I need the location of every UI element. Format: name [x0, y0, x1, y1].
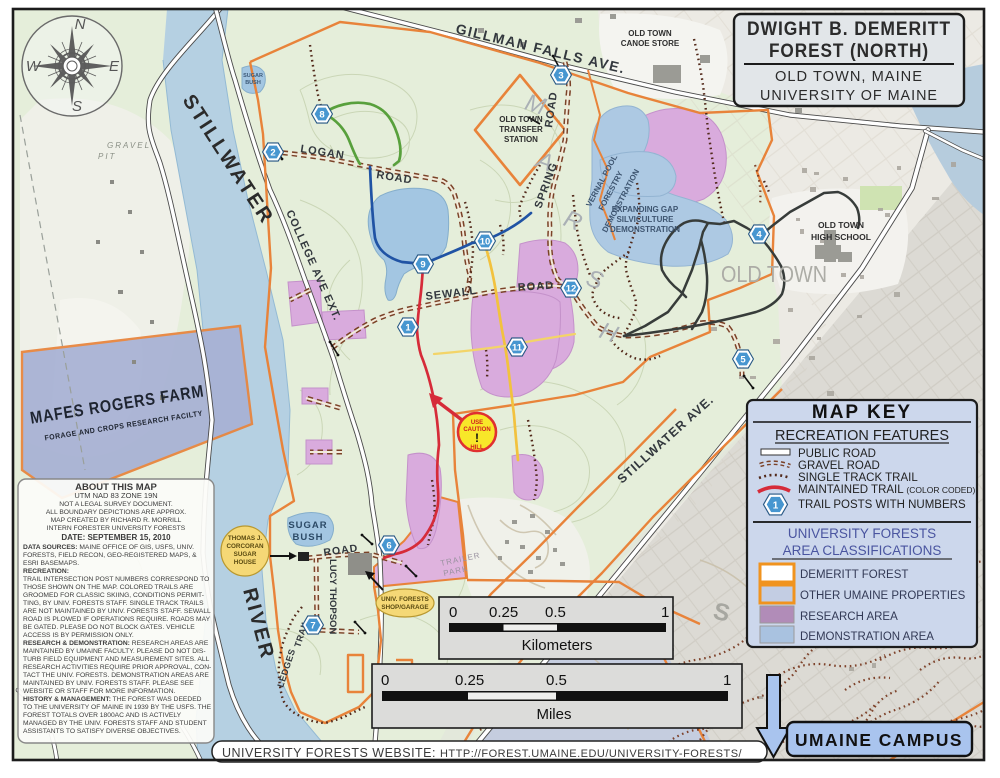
svg-text:EXPANDING GAP: EXPANDING GAP [612, 205, 679, 214]
svg-text:UMAINE CAMPUS: UMAINE CAMPUS [795, 730, 963, 750]
svg-text:SUGAR: SUGAR [234, 551, 257, 558]
svg-text:AREA CLASSIFICATIONS: AREA CLASSIFICATIONS [783, 543, 942, 558]
svg-text:MAINTAINED BY UMAINE FACULTY.: MAINTAINED BY UMAINE FACULTY. PLEASE DO … [23, 648, 206, 655]
svg-text:RESEARCH AREA: RESEARCH AREA [800, 611, 898, 623]
svg-text:3: 3 [558, 70, 563, 81]
svg-text:8: 8 [319, 109, 324, 120]
svg-text:WEBSITE OR STAFF FOR MORE INFO: WEBSITE OR STAFF FOR MORE INFORMATION. [23, 688, 176, 695]
svg-text:MAINTAINED TRAIL (COLOR CODED): MAINTAINED TRAIL (COLOR CODED) [798, 484, 976, 496]
svg-text:DEMONSTRATION AREA: DEMONSTRATION AREA [800, 631, 934, 643]
svg-text:CANOE STORE: CANOE STORE [621, 39, 680, 48]
svg-text:0.5: 0.5 [546, 672, 567, 689]
svg-text:FORESTS, FIELD RECON, GEO-REGI: FORESTS, FIELD RECON, GEO-REGISTERED MAP… [23, 552, 197, 559]
svg-text:USE: USE [471, 420, 483, 426]
svg-text:5: 5 [740, 354, 746, 365]
svg-text:DATA SOURCES: MAINE OFFICE OF: DATA SOURCES: MAINE OFFICE OF GIS, USFS,… [23, 544, 194, 551]
svg-text:S: S [72, 98, 82, 115]
svg-text:OLD TOWN: OLD TOWN [628, 29, 672, 38]
svg-text:ARE NOT MAINTAINED BY UNIV. FO: ARE NOT MAINTAINED BY UNIV. FORESTS STAF… [23, 608, 211, 615]
svg-text:10: 10 [480, 236, 491, 247]
svg-text:0.5: 0.5 [545, 604, 566, 621]
svg-text:DEMERITT FOREST: DEMERITT FOREST [800, 569, 908, 581]
svg-text:9: 9 [420, 259, 425, 270]
svg-text:HIGH SCHOOL: HIGH SCHOOL [811, 232, 871, 242]
svg-text:MANAGED BY THE UNIV. FORESTS S: MANAGED BY THE UNIV. FORESTS STAFF AND S… [23, 720, 207, 727]
svg-text:BE GATED. PLEASE DO NOT BLOCK: BE GATED. PLEASE DO NOT BLOCK GATES. VEH… [23, 624, 195, 631]
svg-text:W: W [26, 58, 42, 75]
svg-text:CORCORAN: CORCORAN [226, 543, 264, 550]
svg-text:STATION: STATION [504, 135, 538, 144]
svg-text:OLD TOWN: OLD TOWN [818, 220, 864, 230]
svg-text:SILVICULTURE: SILVICULTURE [616, 215, 674, 224]
svg-text:4: 4 [756, 229, 762, 240]
svg-text:TING, BY UNIV. FORESTS STAFF.: TING, BY UNIV. FORESTS STAFF. SINGLE TRA… [23, 600, 204, 607]
svg-text:0.25: 0.25 [489, 604, 518, 621]
svg-text:TRAIL POSTS WITH NUMBERS: TRAIL POSTS WITH NUMBERS [798, 499, 966, 511]
svg-text:HILL: HILL [470, 445, 484, 451]
svg-text:NOT A LEGAL SURVEY DOCUMENT.: NOT A LEGAL SURVEY DOCUMENT. [59, 501, 173, 508]
svg-text:0.25: 0.25 [455, 672, 484, 689]
svg-text:RECREATION:: RECREATION: [23, 568, 69, 575]
svg-text:RESEARCH ACTIVITIES REQUIRE PR: RESEARCH ACTIVITIES REQUIRE PRIOR APPROV… [23, 664, 211, 671]
svg-text:ROAD IS PLOWED IF OPERATIONS R: ROAD IS PLOWED IF OPERATIONS REQUIRE. RO… [23, 616, 211, 623]
svg-text:1: 1 [723, 672, 731, 689]
svg-text:Miles: Miles [536, 706, 571, 723]
svg-text:RECREATION FEATURES: RECREATION FEATURES [775, 428, 949, 444]
svg-text:UNIV. FORESTS: UNIV. FORESTS [381, 596, 429, 603]
svg-text:6: 6 [386, 540, 391, 551]
svg-text:UNIVERSITY OF MAINE: UNIVERSITY OF MAINE [760, 88, 938, 104]
svg-text:TO THE UNIVERSITY OF MAINE IN: TO THE UNIVERSITY OF MAINE IN 1939 BY TH… [23, 704, 212, 711]
svg-text:DEMONSTRATION: DEMONSTRATION [610, 225, 680, 234]
svg-text:FOREST TOTALS OVER 1800AC AND: FOREST TOTALS OVER 1800AC AND IS ACTIVEL… [23, 712, 182, 719]
svg-text:MAINTAINED BY UNIV. FORESTS ST: MAINTAINED BY UNIV. FORESTS STAFF. PLEAS… [23, 680, 194, 687]
svg-text:DATE: SEPTEMBER 15, 2010: DATE: SEPTEMBER 15, 2010 [61, 533, 171, 542]
svg-text:SUGAR: SUGAR [288, 520, 327, 531]
svg-text:INTERN FORESTER UNIVERSITY FOR: INTERN FORESTER UNIVERSITY FORESTS [47, 525, 186, 532]
svg-text:DWIGHT B. DEMERITT: DWIGHT B. DEMERITT [747, 19, 951, 40]
svg-text:Kilometers: Kilometers [522, 637, 593, 654]
svg-text:ACCESS IS BY PERMISSION ONLY.: ACCESS IS BY PERMISSION ONLY. [23, 632, 134, 639]
svg-text:TRANSFER: TRANSFER [499, 125, 543, 134]
svg-text:1: 1 [773, 501, 779, 512]
svg-text:UTM NAD 83 ZONE 19N: UTM NAD 83 ZONE 19N [74, 491, 157, 500]
svg-text:FOREST (NORTH): FOREST (NORTH) [769, 41, 929, 62]
svg-text:ROAD: ROAD [517, 279, 554, 294]
svg-text:E: E [109, 58, 120, 75]
svg-text:GROOMED FOR CLASSIC SKIING, CO: GROOMED FOR CLASSIC SKIING, CONDITIONS P… [23, 592, 204, 599]
svg-text:THOMAS J.: THOMAS J. [228, 535, 263, 542]
svg-text:MAP KEY: MAP KEY [812, 402, 912, 423]
svg-text:2: 2 [270, 147, 275, 158]
svg-text:!: ! [475, 431, 479, 445]
svg-text:SHOP/GARAGE: SHOP/GARAGE [381, 604, 428, 611]
svg-text:UNIVERSITY FORESTS: UNIVERSITY FORESTS [788, 526, 936, 541]
svg-text:MAP CREATED BY RICHARD R. MORR: MAP CREATED BY RICHARD R. MORRILL [51, 517, 182, 524]
svg-text:RESEARCH & DEMONSTRATION: RESE: RESEARCH & DEMONSTRATION: RESEARCH AREAS… [23, 640, 209, 647]
svg-text:7: 7 [310, 620, 315, 631]
svg-text:ASSISTANTS TO SATISFY DIVERSE: ASSISTANTS TO SATISFY DIVERSE OBJECTIVES… [23, 728, 181, 735]
svg-text:OLD TOWN, MAINE: OLD TOWN, MAINE [775, 69, 923, 85]
svg-text:1: 1 [661, 604, 669, 621]
svg-text:SINGLE TRACK TRAIL: SINGLE TRACK TRAIL [798, 472, 918, 484]
svg-text:ALL BOUNDARY DEPICTIONS ARE AP: ALL BOUNDARY DEPICTIONS ARE APPROX. [46, 509, 186, 516]
svg-text:LUCY THOPSON: LUCY THOPSON [327, 559, 338, 634]
svg-text:0: 0 [449, 604, 457, 621]
svg-text:SUGAR: SUGAR [243, 73, 263, 79]
svg-text:HISTORY & MANAGEMENT: THE FORE: HISTORY & MANAGEMENT: THE FOREST WAS DEE… [23, 696, 202, 703]
svg-text:THOSE SHOWN ON THE MAP. COLORE: THOSE SHOWN ON THE MAP. COLORED TRAILS A… [23, 584, 194, 591]
svg-text:TURB FIELD EQUIPMENT AND MEASU: TURB FIELD EQUIPMENT AND MEASUREMENT SIT… [23, 656, 210, 663]
svg-text:N: N [75, 16, 86, 33]
svg-text:PUBLIC ROAD: PUBLIC ROAD [798, 448, 876, 460]
svg-text:PIT: PIT [98, 152, 116, 161]
svg-text:ESRI BASEMAPS.: ESRI BASEMAPS. [23, 560, 79, 567]
svg-text:BUSH: BUSH [245, 80, 261, 86]
svg-text:OLD TOWN: OLD TOWN [721, 261, 827, 287]
svg-text:11: 11 [512, 342, 523, 353]
svg-text:OLD TOWN: OLD TOWN [499, 115, 543, 124]
svg-text:OTHER UMAINE PROPERTIES: OTHER UMAINE PROPERTIES [800, 590, 966, 602]
svg-text:HOUSE: HOUSE [234, 559, 256, 566]
svg-text:TRAIL INTERSECTION POST NUMBER: TRAIL INTERSECTION POST NUMBERS CORRESPO… [23, 576, 209, 583]
svg-text:GRAVEL: GRAVEL [107, 141, 151, 150]
svg-text:BUSH: BUSH [293, 532, 324, 543]
svg-text:0: 0 [381, 672, 389, 689]
svg-text:UNIVERSITY FORESTS WEBSITE: HT: UNIVERSITY FORESTS WEBSITE: HTTP://FORES… [222, 746, 743, 760]
svg-text:TACT THE UNIV. FORESTS. DEMONS: TACT THE UNIV. FORESTS. DEMONSTRATION AR… [23, 672, 209, 679]
svg-text:GRAVEL ROAD: GRAVEL ROAD [798, 460, 880, 472]
svg-text:12: 12 [566, 283, 577, 294]
svg-text:1: 1 [405, 322, 411, 333]
